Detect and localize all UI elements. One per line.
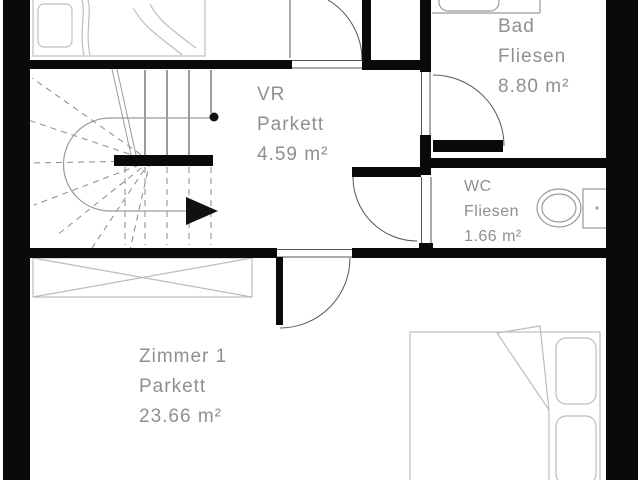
room-label-vr: VR Parkett 4.59 m² [257,80,328,170]
room-label-zimmer1: Zimmer 1 Parkett 23.66 m² [139,342,227,432]
double-bed [410,326,600,480]
door-arc-wc [353,177,417,241]
wall-shaft [362,0,371,62]
wall-top-right [362,60,428,70]
room-floor: Fliesen [498,42,569,72]
bed-top-room [33,0,205,56]
wall-top-left [30,60,292,69]
wall-left-exterior [3,0,30,480]
wall-bad-left-upper [420,0,431,72]
walking-line-arrow-icon [186,197,218,225]
stair-cut-bar [114,155,213,166]
wall-zimmer1-top-left [30,248,277,258]
room-area: 4.59 m² [257,140,328,170]
wardrobe [33,258,252,297]
door-leaf-zimmer1 [276,257,283,325]
wall-vr-wc [352,167,421,177]
door-arc-zimmer1 [280,258,350,328]
room-floor: Parkett [257,110,328,140]
room-floor: Parkett [139,372,227,402]
wall-right-exterior [606,0,638,480]
wall-bad-left-lower [420,135,431,175]
room-name: WC [464,174,522,199]
wall-bad-wc [428,158,612,168]
room-floor: Fliesen [464,199,522,224]
room-label-bad: Bad Fliesen 8.80 m² [498,12,569,102]
room-name: Bad [498,12,569,42]
room-label-wc: WC Fliesen 1.66 m² [464,174,522,249]
floor-plan: VR Parkett 4.59 m² Bad Fliesen 8.80 m² W… [0,0,640,480]
toilet-icon [537,189,607,228]
door-arc-bad [433,75,504,146]
room-area: 23.66 m² [139,402,227,432]
room-name: Zimmer 1 [139,342,227,372]
door-arc-top-room [328,0,362,60]
wall-zimmer1-top-right [352,248,608,258]
room-name: VR [257,80,328,110]
door-leaf-bad [433,140,503,152]
room-area: 8.80 m² [498,72,569,102]
room-area: 1.66 m² [464,224,522,249]
walking-line-start-dot [210,113,219,122]
